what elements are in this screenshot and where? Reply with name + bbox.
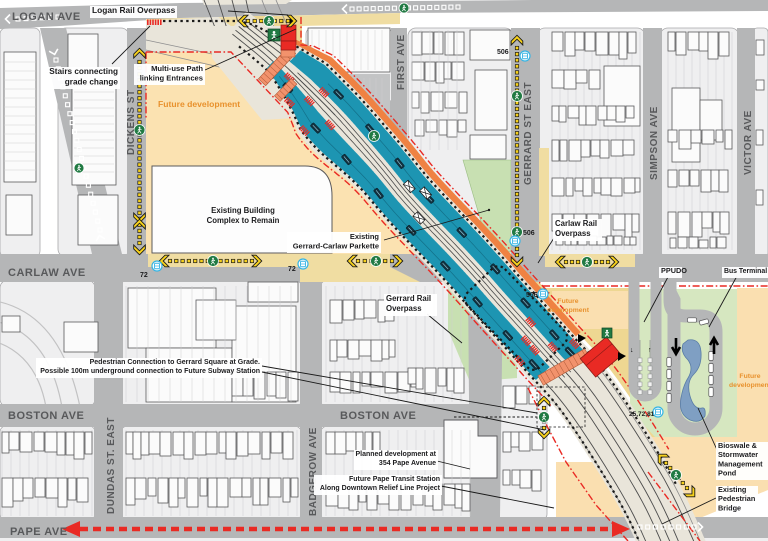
svg-text:Multi-use Path: Multi-use Path — [151, 64, 203, 73]
svg-text:Existing: Existing — [350, 232, 380, 241]
svg-text:DUNDAS ST. EAST: DUNDAS ST. EAST — [106, 417, 117, 514]
svg-text:506: 506 — [497, 49, 509, 56]
svg-text:506: 506 — [526, 292, 538, 299]
svg-text:Bridge: Bridge — [718, 503, 741, 512]
svg-text:Stairs connecting: Stairs connecting — [49, 67, 118, 76]
svg-text:PPUDO: PPUDO — [661, 266, 687, 275]
svg-text:Overpass: Overpass — [555, 229, 591, 238]
svg-text:Possible 100m underground conn: Possible 100m underground connection to … — [40, 368, 260, 375]
svg-text:Gerrard-Carlaw Parkette: Gerrard-Carlaw Parkette — [293, 241, 379, 250]
svg-text:PAPE AVE: PAPE AVE — [10, 526, 68, 538]
svg-text:506: 506 — [523, 230, 535, 237]
svg-text:↑: ↑ — [648, 347, 652, 354]
svg-text:Bus Terminal: Bus Terminal — [724, 268, 767, 275]
svg-text:Planned development at: Planned development at — [355, 451, 436, 458]
svg-text:Pedestrian Connection to Gerra: Pedestrian Connection to Gerrard Square … — [90, 359, 260, 366]
svg-text:development: development — [547, 307, 590, 314]
svg-text:BADGEROW AVE: BADGEROW AVE — [308, 427, 319, 516]
svg-text:Future: Future — [739, 373, 760, 380]
svg-text:↓: ↓ — [630, 347, 634, 354]
svg-text:Bioswale &: Bioswale & — [718, 441, 758, 450]
svg-text:Logan Rail Overpass: Logan Rail Overpass — [92, 5, 176, 15]
svg-text:Gerrard Rail: Gerrard Rail — [386, 294, 431, 303]
svg-text:72: 72 — [288, 266, 296, 273]
svg-text:Along Downtown Relief Line Pro: Along Downtown Relief Line Project — [320, 485, 441, 492]
svg-text:354 Pape Avenue: 354 Pape Avenue — [379, 460, 436, 467]
svg-text:72: 72 — [140, 272, 148, 279]
svg-text:Existing Building: Existing Building — [211, 206, 275, 215]
svg-text:grade change: grade change — [65, 77, 119, 86]
svg-text:25,72,81: 25,72,81 — [629, 411, 655, 418]
svg-text:VICTOR AVE: VICTOR AVE — [743, 110, 754, 175]
svg-text:Management: Management — [718, 459, 763, 468]
svg-text:development: development — [729, 382, 768, 389]
svg-text:DICKENS ST: DICKENS ST — [126, 89, 137, 155]
svg-text:CARLAW AVE: CARLAW AVE — [8, 267, 86, 279]
svg-text:Existing: Existing — [718, 485, 746, 494]
svg-text:Future Pape Transit Station: Future Pape Transit Station — [349, 476, 440, 483]
svg-text:FIRST AVE: FIRST AVE — [396, 34, 407, 90]
svg-text:BOSTON AVE: BOSTON AVE — [340, 410, 416, 422]
svg-text:Future development: Future development — [158, 99, 240, 109]
svg-text:SIMPSON AVE: SIMPSON AVE — [649, 106, 660, 180]
svg-text:Future: Future — [557, 298, 578, 305]
svg-text:GERRARD ST EAST: GERRARD ST EAST — [523, 82, 534, 185]
svg-text:Pond: Pond — [718, 468, 736, 477]
svg-text:Complex to Remain: Complex to Remain — [207, 216, 280, 225]
svg-text:Stormwater: Stormwater — [718, 450, 758, 459]
svg-text:Overpass: Overpass — [386, 304, 422, 313]
svg-text:linking Entrances: linking Entrances — [140, 74, 203, 83]
svg-text:Carlaw Rail: Carlaw Rail — [555, 219, 597, 228]
svg-text:Pedestrian: Pedestrian — [718, 494, 755, 503]
svg-text:LOGAN AVE: LOGAN AVE — [12, 11, 81, 23]
svg-text:BOSTON AVE: BOSTON AVE — [8, 410, 84, 422]
